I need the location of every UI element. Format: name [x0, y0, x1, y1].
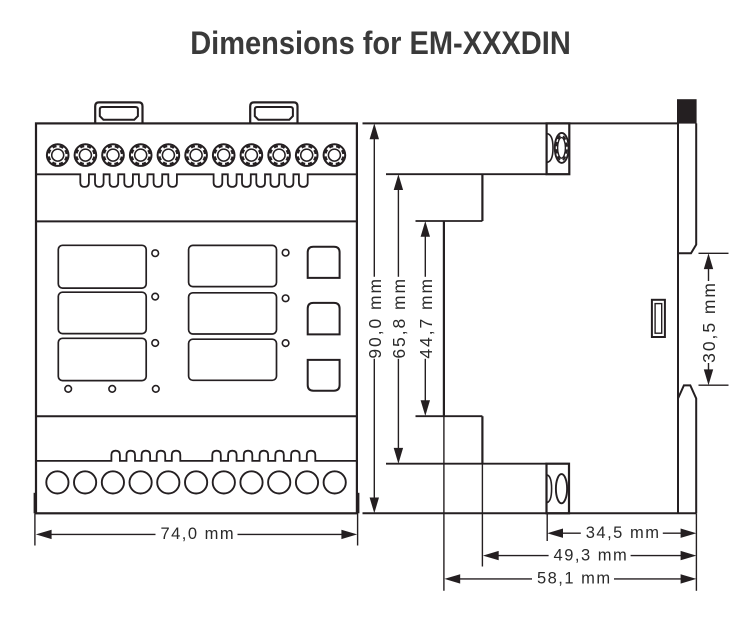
svg-text:74,0 mm: 74,0 mm: [160, 525, 235, 543]
svg-text:58,1 mm: 58,1 mm: [537, 570, 612, 588]
svg-text:30,5 mm: 30,5 mm: [699, 281, 719, 363]
svg-text:49,3 mm: 49,3 mm: [554, 546, 629, 564]
svg-text:90,0 mm: 90,0 mm: [365, 277, 385, 359]
svg-text:65,8 mm: 65,8 mm: [389, 277, 409, 359]
svg-text:34,5 mm: 34,5 mm: [586, 524, 661, 542]
svg-text:44,7 mm: 44,7 mm: [416, 277, 436, 359]
